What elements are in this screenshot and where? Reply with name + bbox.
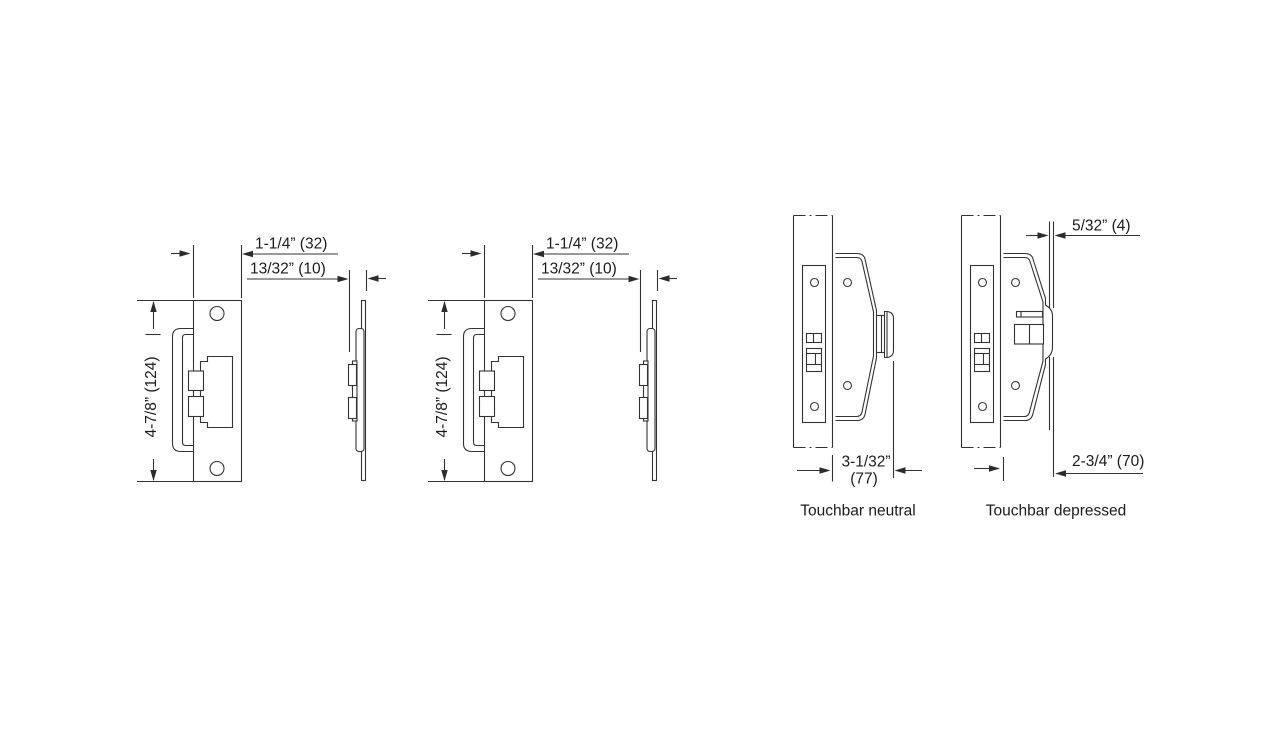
arrowhead-right: [989, 465, 1000, 471]
mounting-hole: [844, 382, 852, 390]
dim-projection-mm-label: (77): [850, 471, 878, 488]
arrowhead-left: [895, 467, 906, 473]
screw-hole: [811, 279, 819, 287]
touchbar-depressed-figure: 5/32” (4) 2-3/4” (70) Touchbar depressed: [962, 216, 1145, 520]
touchbar-cap: [885, 312, 894, 358]
depressed-bar-top: [1017, 312, 1043, 318]
arrowhead-right: [820, 467, 831, 473]
technical-drawing: 4-7/8” (124) 1-1/4” (32) 13/32” (10): [0, 0, 1280, 732]
mounting-hole: [1012, 279, 1020, 287]
mounting-hole: [1012, 382, 1020, 390]
touchbar-neutral-caption: Touchbar neutral: [800, 503, 915, 520]
screw-hole: [979, 279, 987, 287]
arrowhead-left: [1055, 470, 1066, 476]
dimension-drawing-page: 4-7/8” (124) 1-1/4” (32) 13/32” (10): [0, 0, 1280, 732]
dim-projection-in-label: 3-1/32”: [841, 454, 890, 471]
mortise-faceplate: [971, 266, 994, 423]
strike-plate-figure-1: [137, 236, 386, 482]
touchbar-neutral-figure: 3-1/32” (77) Touchbar neutral: [794, 216, 923, 520]
dim-projection-label: 2-3/4” (70): [1072, 453, 1144, 470]
arrowhead-left: [1055, 232, 1066, 238]
touchbar-depressed-caption: Touchbar depressed: [986, 503, 1126, 520]
strike-plate-figure-2: [428, 236, 677, 482]
mounting-hole: [844, 279, 852, 287]
dim-travel-label: 5/32” (4): [1072, 218, 1131, 235]
touchbar-housing-outline: [836, 254, 877, 421]
screw-hole: [811, 403, 819, 411]
mortise-faceplate: [803, 266, 826, 423]
arrowhead-right: [1038, 232, 1049, 238]
screw-hole: [979, 403, 987, 411]
